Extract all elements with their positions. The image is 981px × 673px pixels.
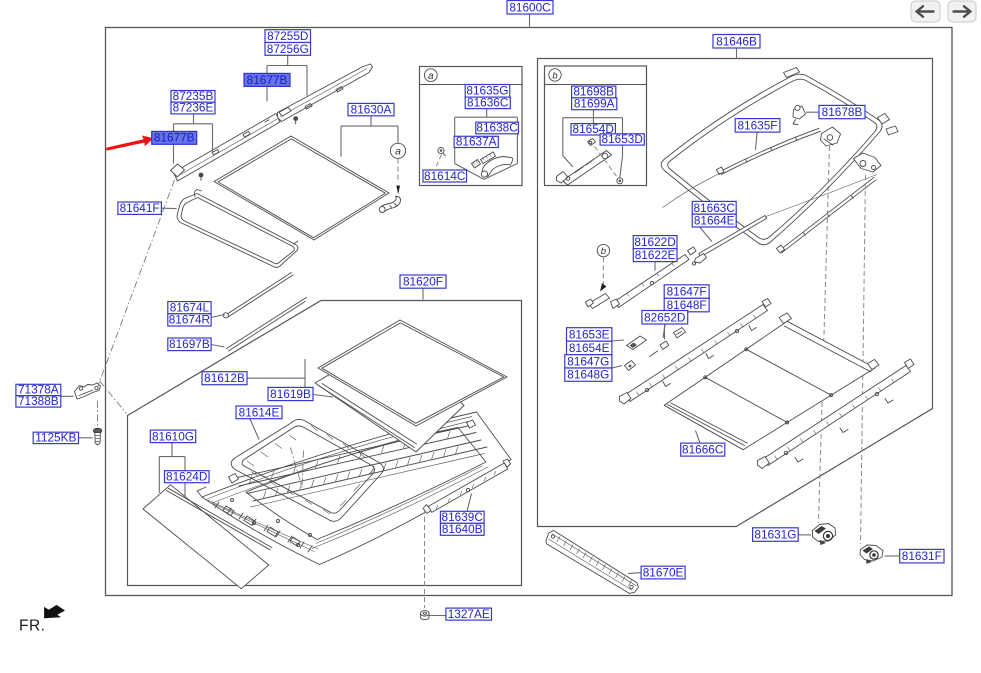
svg-text:81653E: 81653E <box>569 328 610 342</box>
svg-text:81624D: 81624D <box>166 470 207 484</box>
svg-text:a: a <box>428 71 434 82</box>
svg-text:81677B: 81677B <box>247 73 288 87</box>
svg-text:81670E: 81670E <box>643 566 684 580</box>
svg-text:81674R: 81674R <box>169 313 210 327</box>
svg-text:81653D: 81653D <box>602 132 643 146</box>
svg-text:1327AE: 1327AE <box>448 607 490 621</box>
svg-text:81631G: 81631G <box>754 528 796 542</box>
svg-text:81666C: 81666C <box>682 443 724 457</box>
svg-text:81664E: 81664E <box>694 214 735 228</box>
svg-text:87256G: 87256G <box>267 42 309 56</box>
svg-text:81699A: 81699A <box>574 97 615 111</box>
svg-text:81646B: 81646B <box>716 34 757 48</box>
svg-text:81636C: 81636C <box>467 96 509 110</box>
svg-text:81678B: 81678B <box>822 105 863 119</box>
svg-text:a: a <box>395 146 401 158</box>
svg-text:81610G: 81610G <box>152 429 194 443</box>
svg-text:81648G: 81648G <box>567 368 609 382</box>
svg-text:81637A: 81637A <box>456 135 497 149</box>
svg-text:81619B: 81619B <box>270 387 311 401</box>
svg-text:81614C: 81614C <box>424 169 466 183</box>
svg-text:b: b <box>552 71 557 82</box>
svg-text:81631F: 81631F <box>902 549 942 563</box>
svg-text:71388B: 71388B <box>18 394 59 408</box>
svg-text:b: b <box>601 246 606 257</box>
svg-text:1125KB: 1125KB <box>35 431 76 445</box>
svg-text:81641F: 81641F <box>120 201 160 215</box>
svg-text:81647F: 81647F <box>667 285 707 299</box>
svg-text:81630A: 81630A <box>351 103 392 117</box>
svg-text:81614E: 81614E <box>239 405 280 419</box>
svg-text:81622E: 81622E <box>635 248 676 262</box>
svg-text:81677B: 81677B <box>154 131 195 145</box>
svg-text:81638C: 81638C <box>476 121 518 135</box>
svg-text:81635F: 81635F <box>737 118 777 132</box>
svg-text:81640B: 81640B <box>442 522 483 536</box>
svg-text:81647G: 81647G <box>567 354 609 368</box>
svg-text:81612B: 81612B <box>204 371 245 385</box>
svg-text:81622D: 81622D <box>634 235 675 249</box>
svg-text:82652D: 82652D <box>644 310 685 324</box>
svg-text:81697B: 81697B <box>169 337 210 351</box>
svg-text:FR.: FR. <box>19 618 45 635</box>
svg-text:87236E: 87236E <box>173 101 214 115</box>
svg-text:81620F: 81620F <box>403 275 443 289</box>
svg-text:81600C: 81600C <box>509 0 551 14</box>
svg-text:81654E: 81654E <box>569 341 610 355</box>
